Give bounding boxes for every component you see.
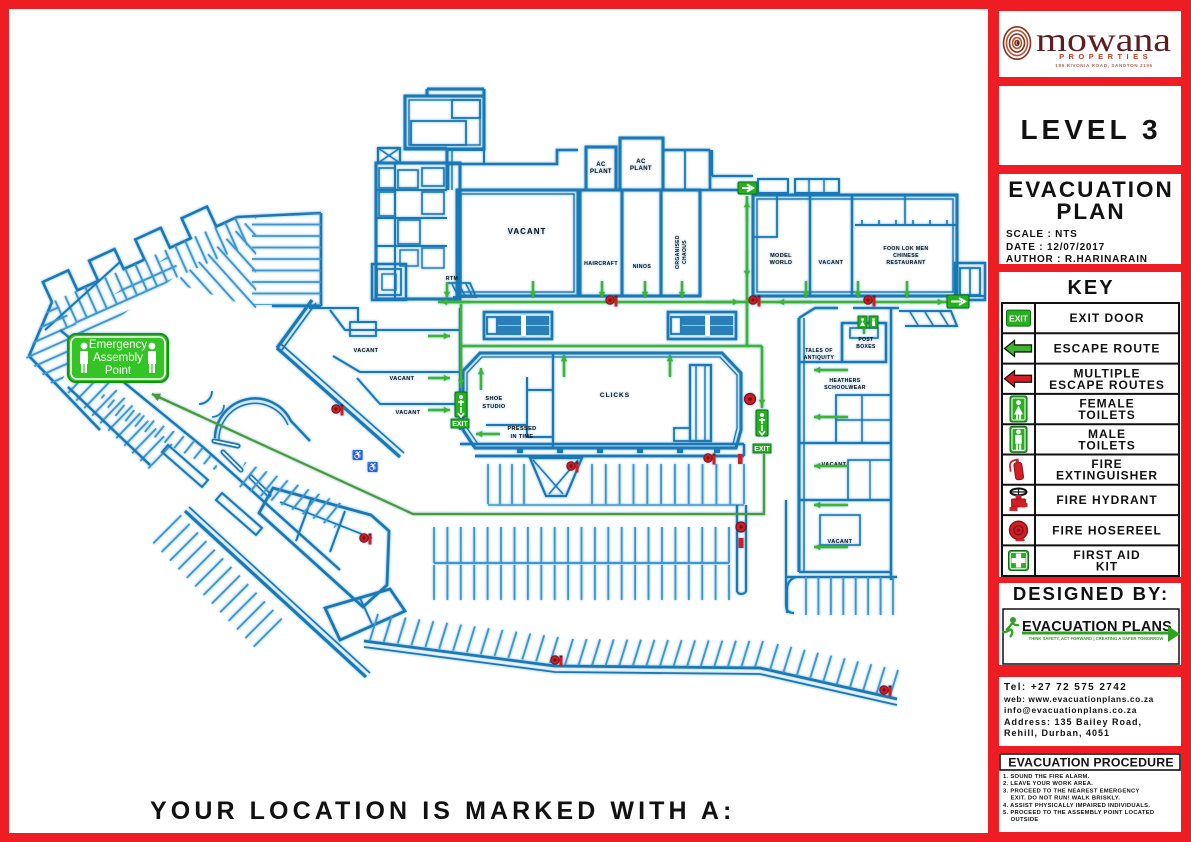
svg-text:P R O P E R T I E S: P R O P E R T I E S [1059, 52, 1149, 61]
svg-text:web: www.evacuationplans.co.za: web: www.evacuationplans.co.za [1003, 694, 1154, 704]
svg-text:THINK SAFETY, ACT FORWARD | CR: THINK SAFETY, ACT FORWARD | CREATING A S… [1029, 636, 1164, 641]
svg-text:ORGANISED: ORGANISED [675, 235, 681, 269]
svg-text:Point: Point [105, 365, 132, 377]
svg-text:VACANT: VACANT [828, 539, 853, 545]
svg-text:YOUR LOCATION IS MARKED WITH A: YOUR LOCATION IS MARKED WITH A: [150, 797, 735, 825]
svg-text:AUTHOR : R.HARINARAIN: AUTHOR : R.HARINARAIN [1006, 254, 1148, 265]
svg-text:IN TIME: IN TIME [511, 434, 534, 440]
svg-text:VACANT: VACANT [508, 227, 547, 236]
svg-text:PLANT: PLANT [630, 166, 652, 172]
svg-text:info@evacuationplans.co.za: info@evacuationplans.co.za [1004, 705, 1137, 715]
svg-text:VACANT: VACANT [819, 260, 844, 266]
svg-text:PLANT: PLANT [590, 169, 612, 175]
svg-text:FIRE HYDRANT: FIRE HYDRANT [1056, 493, 1157, 507]
svg-text:EXIT: EXIT [754, 446, 770, 453]
svg-text:TOILETS: TOILETS [1078, 408, 1135, 422]
svg-text:CLICKS: CLICKS [600, 392, 630, 399]
svg-text:HAIRCRAFT: HAIRCRAFT [584, 261, 618, 267]
svg-text:TOILETS: TOILETS [1078, 438, 1135, 452]
svg-text:FOON LOK MEN: FOON LOK MEN [883, 246, 928, 252]
svg-text:EXIT. DO NOT RUN! WALK BRISKLY: EXIT. DO NOT RUN! WALK BRISKLY. [1003, 796, 1120, 802]
svg-text:EXIT: EXIT [1009, 313, 1029, 323]
svg-text:LEVEL 3: LEVEL 3 [1020, 114, 1161, 145]
svg-text:DESIGNED BY:: DESIGNED BY: [1013, 583, 1169, 604]
svg-text:TALES OF: TALES OF [805, 348, 833, 354]
svg-text:HEATHERS: HEATHERS [829, 378, 860, 384]
svg-text:NINOS: NINOS [633, 264, 652, 270]
svg-text:3. PROCEED TO THE NEAREST EME: 3. PROCEED TO THE NEAREST EMERGENCY [1003, 788, 1140, 794]
svg-text:POST: POST [858, 337, 873, 343]
svg-text:BOXES: BOXES [856, 344, 876, 350]
svg-text:PLAN: PLAN [1056, 199, 1125, 224]
svg-text:Address: 135 Bailey Road,: Address: 135 Bailey Road, [1004, 717, 1142, 727]
svg-text:EXIT: EXIT [452, 421, 468, 428]
svg-text:ESCAPE ROUTES: ESCAPE ROUTES [1049, 378, 1165, 392]
svg-text:DATE : 12/07/2017: DATE : 12/07/2017 [1006, 242, 1105, 253]
svg-text:FIRE HOSEREEL: FIRE HOSEREEL [1052, 523, 1162, 537]
svg-text:EXTINGUISHER: EXTINGUISHER [1056, 469, 1158, 483]
svg-text:ESCAPE ROUTE: ESCAPE ROUTE [1054, 341, 1161, 355]
svg-text:WORLD: WORLD [770, 260, 793, 266]
svg-text:KEY: KEY [1067, 277, 1114, 299]
svg-text:STUDIO: STUDIO [482, 404, 505, 410]
svg-text:MODEL: MODEL [770, 253, 792, 259]
svg-text:5. PROCEED TO THE ASSEMBLY PO: 5. PROCEED TO THE ASSEMBLY POINT LOCATED [1003, 810, 1154, 816]
svg-text:PRESSED: PRESSED [507, 426, 536, 432]
svg-text:VACANT: VACANT [354, 348, 379, 354]
svg-text:VACANT: VACANT [396, 410, 421, 416]
svg-text:OUTSIDE: OUTSIDE [1003, 817, 1039, 823]
svg-text:SCHOOLWEAR: SCHOOLWEAR [824, 385, 866, 391]
svg-text:4. ASSIST PHYSICALLY IMPAIRED: 4. ASSIST PHYSICALLY IMPAIRED INDIVIDUAL… [1003, 803, 1150, 809]
svg-text:2. LEAVE YOUR WORK AREA.: 2. LEAVE YOUR WORK AREA. [1003, 781, 1093, 787]
svg-text:EXIT DOOR: EXIT DOOR [1069, 311, 1144, 325]
svg-text:AC: AC [636, 159, 646, 165]
svg-text:AC: AC [596, 162, 606, 168]
svg-text:♿: ♿ [367, 461, 378, 472]
svg-text:EVACUATION PROCEDURE: EVACUATION PROCEDURE [1008, 756, 1173, 770]
svg-text:RESTAURANT: RESTAURANT [886, 260, 926, 266]
svg-text:VACANT: VACANT [390, 376, 415, 382]
svg-text:RTM: RTM [446, 276, 458, 282]
svg-text:SCALE : NTS: SCALE : NTS [1006, 229, 1078, 240]
svg-text:186 RIVONIA ROAD, SANDTON 2196: 186 RIVONIA ROAD, SANDTON 2196 [1055, 63, 1152, 68]
svg-text:SHOE: SHOE [485, 396, 502, 402]
svg-text:Rehill, Durban, 4051: Rehill, Durban, 4051 [1004, 728, 1110, 738]
svg-text:Assembly: Assembly [93, 352, 143, 364]
svg-text:1. SOUND THE FIRE ALARM.: 1. SOUND THE FIRE ALARM. [1003, 774, 1090, 780]
svg-text:Tel: +27 72 575 2742: Tel: +27 72 575 2742 [1004, 682, 1127, 693]
svg-text:♿: ♿ [352, 449, 363, 460]
svg-text:CHAOUS: CHAOUS [682, 240, 688, 264]
svg-text:ANTIQUITY: ANTIQUITY [804, 355, 835, 361]
svg-text:CHINESE: CHINESE [893, 253, 919, 259]
svg-text:KIT: KIT [1096, 560, 1118, 574]
svg-text:Emergency: Emergency [89, 339, 147, 351]
